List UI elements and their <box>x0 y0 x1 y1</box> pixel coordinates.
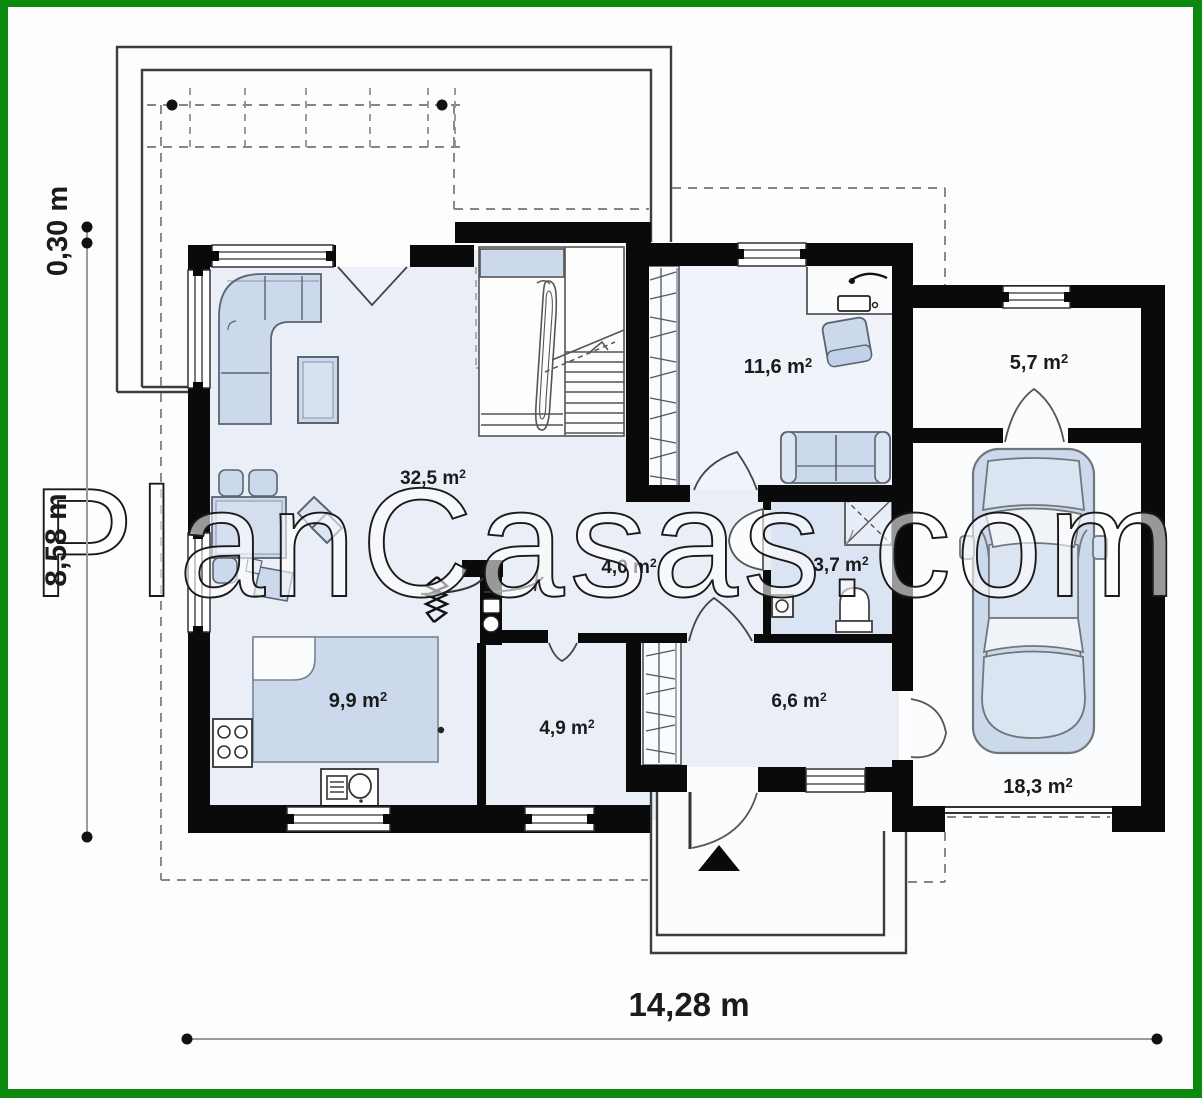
svg-text:4,9 m2: 4,9 m2 <box>539 717 595 739</box>
svg-text:11,6 m2: 11,6 m2 <box>744 355 812 378</box>
svg-text:0,30 m: 0,30 m <box>42 186 74 276</box>
svg-text:5,7 m2: 5,7 m2 <box>1010 351 1068 374</box>
svg-text:8,58 m: 8,58 m <box>40 493 73 586</box>
svg-text:6,6 m2: 6,6 m2 <box>771 690 827 712</box>
svg-text:14,28 m: 14,28 m <box>628 986 749 1023</box>
svg-text:9,9 m2: 9,9 m2 <box>329 689 387 712</box>
svg-text:PlanCasas.com: PlanCasas.com <box>31 456 1181 629</box>
svg-text:18,3 m2: 18,3 m2 <box>1003 775 1073 798</box>
